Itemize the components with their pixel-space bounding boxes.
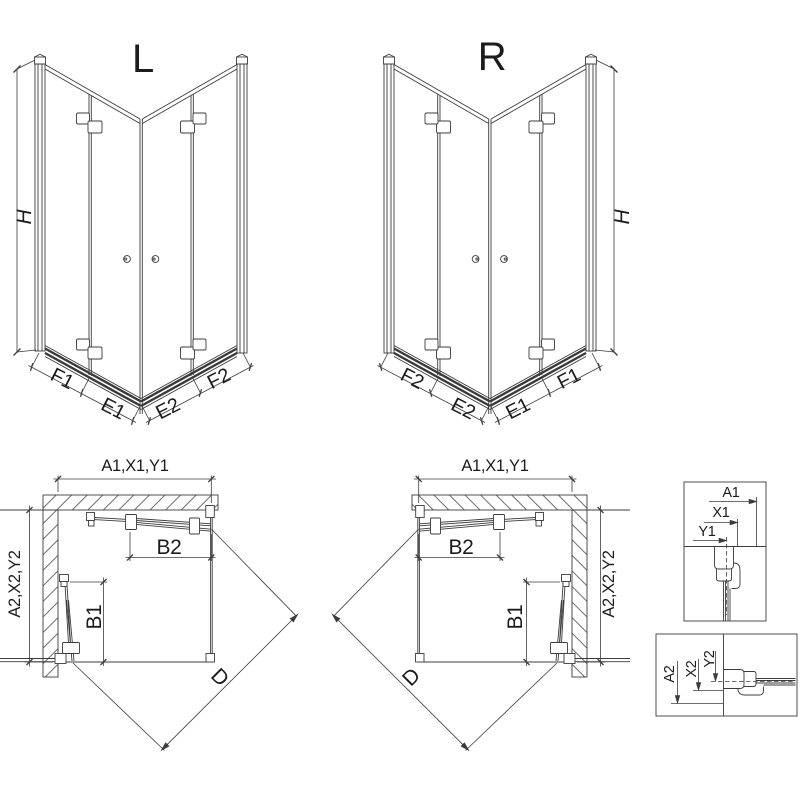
detail-side-dim-x2: X2	[684, 654, 700, 684]
iso-right-height-dim-label: H	[610, 202, 634, 232]
plan-view-left-linework	[0, 450, 320, 790]
plan-right-side-door-dim-label: B1	[504, 597, 526, 637]
detail-top-dim-a1: A1	[716, 485, 746, 501]
plan-left-depth-dim-label: A2,X2,Y2	[6, 529, 24, 639]
detail-side-dim-y2: Y2	[702, 644, 718, 674]
plan-right-depth-dim-label: A2,X2,Y2	[600, 529, 618, 639]
iso-right-title: R	[472, 37, 512, 77]
plan-view-right-linework	[310, 450, 630, 790]
detail-side-dim-a2: A2	[662, 659, 678, 689]
plan-left-side-door-dim-label: B1	[83, 597, 105, 637]
iso-left-title: L	[123, 39, 163, 79]
detail-top-dim-y1: Y1	[692, 524, 722, 540]
shower-enclosure-technical-drawing: L H F1 E1 E2 F2 R H F2 E2 E1 F1 A1,X1,Y1…	[0, 0, 800, 800]
iso-left-height-dim-label: H	[12, 202, 36, 232]
plan-left-top-door-dim-label: B2	[149, 536, 189, 558]
detail-top-dim-x1: X1	[706, 505, 736, 521]
plan-right-top-door-dim-label: B2	[441, 536, 481, 558]
plan-left-width-dim-label: A1,X1,Y1	[80, 457, 190, 475]
plan-right-width-dim-label: A1,X1,Y1	[440, 457, 550, 475]
detail-profile-top-linework	[683, 481, 767, 622]
